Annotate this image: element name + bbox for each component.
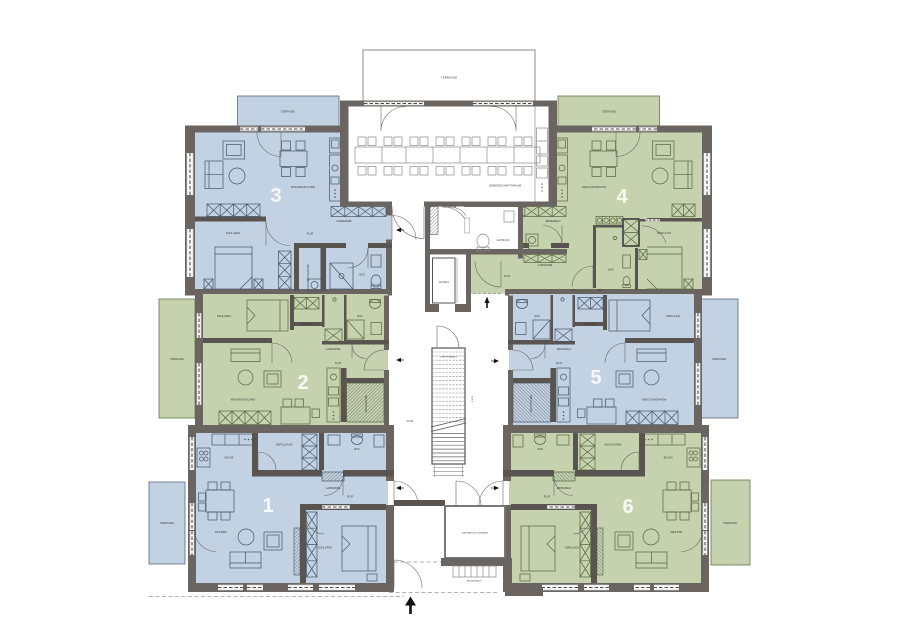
svg-text:HAUSANSCHLUSSRAUM: HAUSANSCHLUSSRAUM [462, 532, 488, 535]
svg-text:1: 1 [262, 495, 273, 517]
svg-text:TERRASSE: TERRASSE [170, 357, 184, 361]
svg-text:5: 5 [590, 367, 601, 389]
svg-text:2: 2 [297, 372, 308, 394]
svg-text:GEMEINSCHAFTSRAUM: GEMEINSCHAFTSRAUM [489, 184, 522, 188]
svg-text:TERRASSE: TERRASSE [602, 110, 616, 114]
svg-text:AUFZUG: AUFZUG [439, 281, 449, 284]
svg-text:TREPPENHAUS: TREPPENHAUS [440, 356, 457, 359]
svg-text:TERRASSE: TERRASSE [712, 357, 726, 361]
svg-text:FLUR: FLUR [504, 275, 511, 278]
svg-text:TERRASSE: TERRASSE [281, 110, 295, 114]
svg-text:BAD: BAD [608, 269, 613, 272]
svg-text:9 STG: 9 STG [472, 396, 474, 403]
svg-text:4: 4 [616, 186, 628, 208]
svg-text:3: 3 [270, 185, 281, 207]
svg-text:FLUR: FLUR [407, 420, 414, 423]
svg-text:GARDEROBE: GARDEROBE [538, 264, 553, 267]
svg-text:6: 6 [622, 496, 633, 518]
svg-text:TERRASSE: TERRASSE [723, 521, 737, 525]
svg-text:TERRASSE: TERRASSE [441, 76, 457, 80]
svg-text:GÄSTE-WC: GÄSTE-WC [497, 239, 510, 242]
svg-text:HAUSEINGANG: HAUSEINGANG [467, 580, 482, 583]
svg-text:TERRASSE: TERRASSE [160, 521, 174, 525]
